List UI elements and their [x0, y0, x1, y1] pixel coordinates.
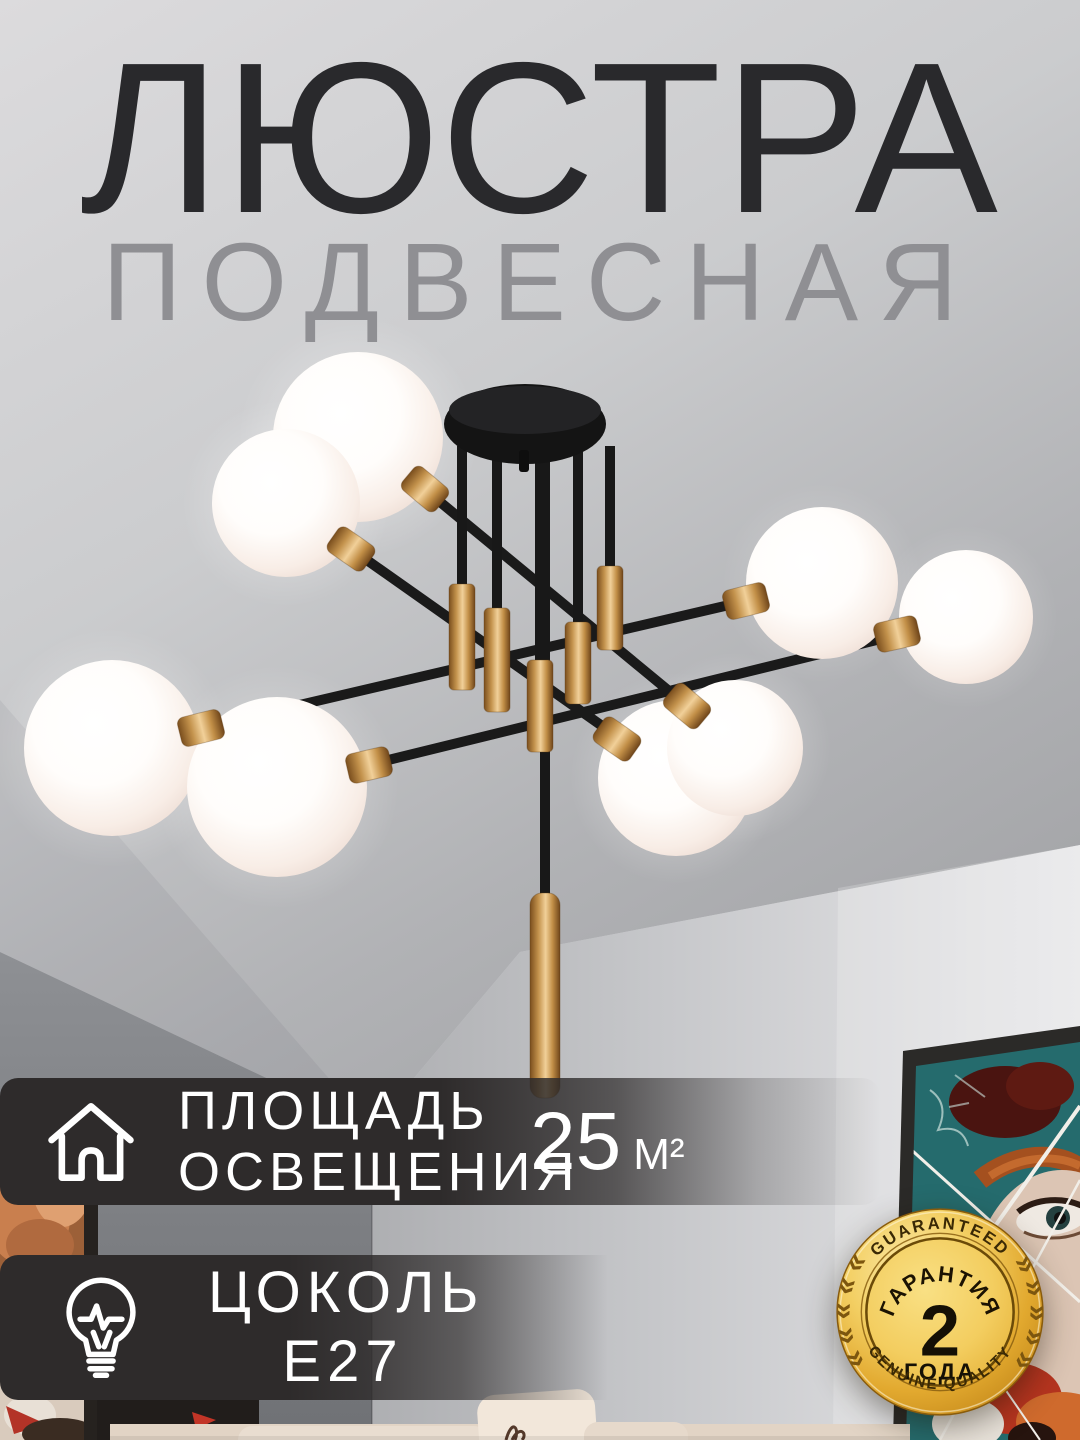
area-value: 25	[530, 1095, 621, 1189]
feature-socket-type: ЦОКОЛЬ Е27	[0, 1255, 640, 1400]
feature-label: ЦОКОЛЬ Е27	[208, 1259, 478, 1396]
feature-label-line1: ПЛОЩАДЬ	[178, 1081, 468, 1141]
feature-label-line1: ЦОКОЛЬ	[208, 1259, 478, 1327]
product-title: ЛЮСТРА	[0, 30, 1080, 245]
feature-label-line2: Е27	[208, 1328, 478, 1396]
warranty-badge: «««««« »»»»»» GUARANTEED ГАРАНТИЯ 2 ГОДА…	[824, 1196, 1056, 1428]
area-unit: М²	[633, 1130, 684, 1180]
product-subtitle: ПОДВЕСНАЯ	[0, 228, 1080, 338]
bulb-icon	[46, 1273, 156, 1383]
feature-value: 25 М²	[530, 1095, 685, 1189]
feature-label-line2: ОСВЕЩЕНИЯ	[178, 1142, 468, 1202]
feature-label: ПЛОЩАДЬ ОСВЕЩЕНИЯ	[178, 1081, 468, 1202]
house-icon	[44, 1095, 138, 1189]
feature-lighting-area: ПЛОЩАДЬ ОСВЕЩЕНИЯ 25 М²	[0, 1078, 880, 1205]
product-card: ЛЮСТРА ПОДВЕСНАЯ ПЛОЩАДЬ ОСВЕЩЕНИЯ 25 М²…	[0, 0, 1080, 1440]
